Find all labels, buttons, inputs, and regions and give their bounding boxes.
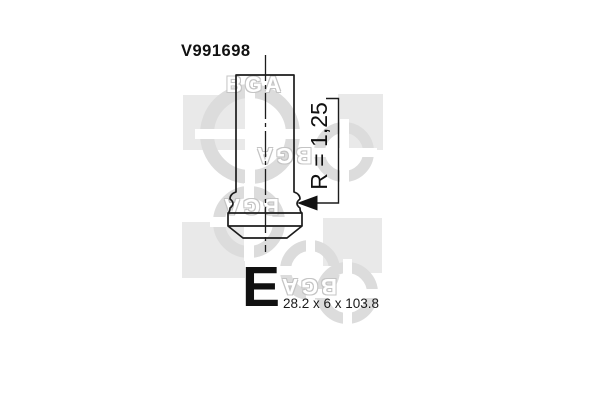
valve-type-letter: E — [242, 259, 280, 316]
valve-diagram-canvas: BGA BGA BGA BGA V991698 R = 1,25 E 28.2 … — [0, 0, 600, 400]
valve-drawing — [0, 0, 600, 400]
radius-label: R = 1,25 — [306, 95, 332, 197]
part-number: V991698 — [181, 43, 251, 60]
dimensions-label: 28.2 x 6 x 103.8 — [283, 297, 379, 312]
